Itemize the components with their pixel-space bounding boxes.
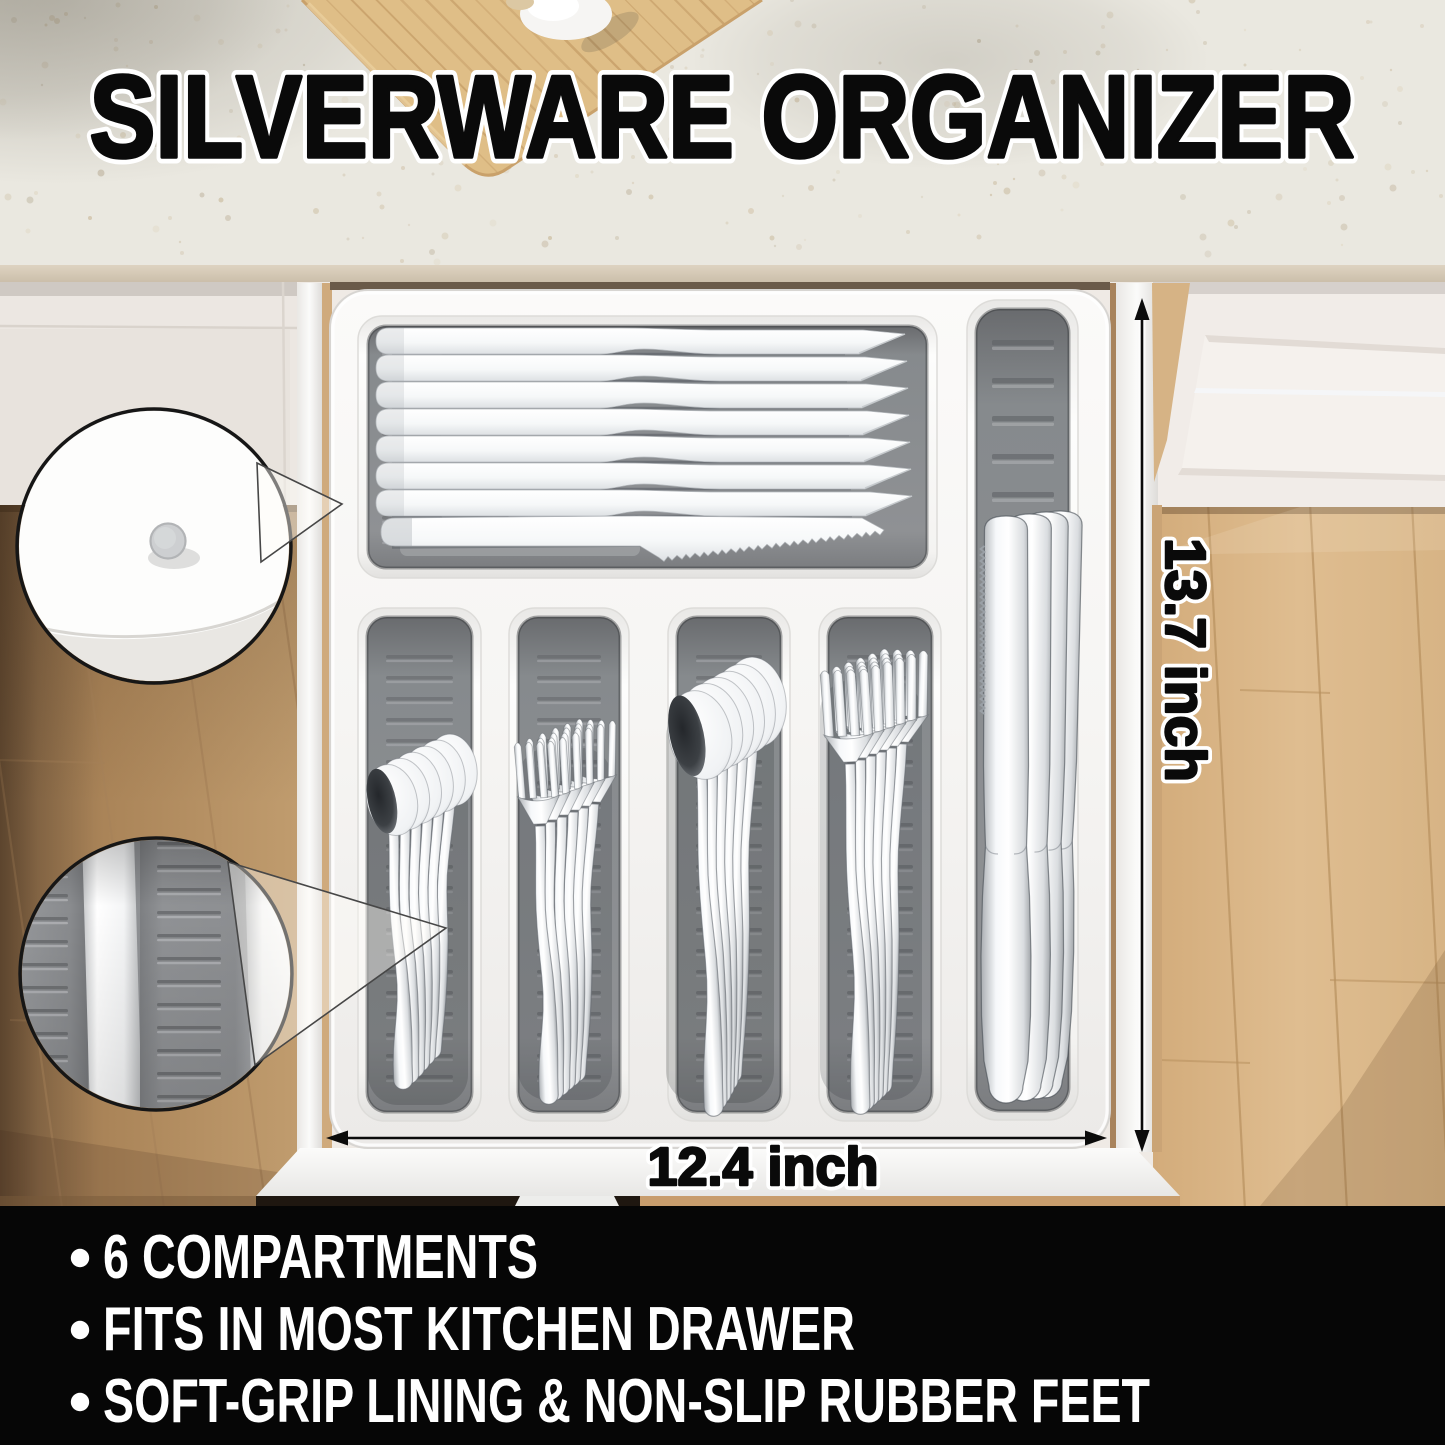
svg-text:6 COMPARTMENTS: 6 COMPARTMENTS xyxy=(103,1223,538,1292)
svg-text:FITS IN MOST KITCHEN DRAWER: FITS IN MOST KITCHEN DRAWER xyxy=(103,1295,855,1364)
svg-text:SOFT-GRIP LINING & NON-SLIP RU: SOFT-GRIP LINING & NON-SLIP RUBBER FEET xyxy=(103,1367,1150,1436)
svg-text:SILVERWARE ORGANIZER: SILVERWARE ORGANIZER xyxy=(90,51,1355,182)
svg-text:12.4 inch: 12.4 inch xyxy=(647,1137,878,1197)
svg-text:13.7 inch: 13.7 inch xyxy=(1153,538,1217,782)
